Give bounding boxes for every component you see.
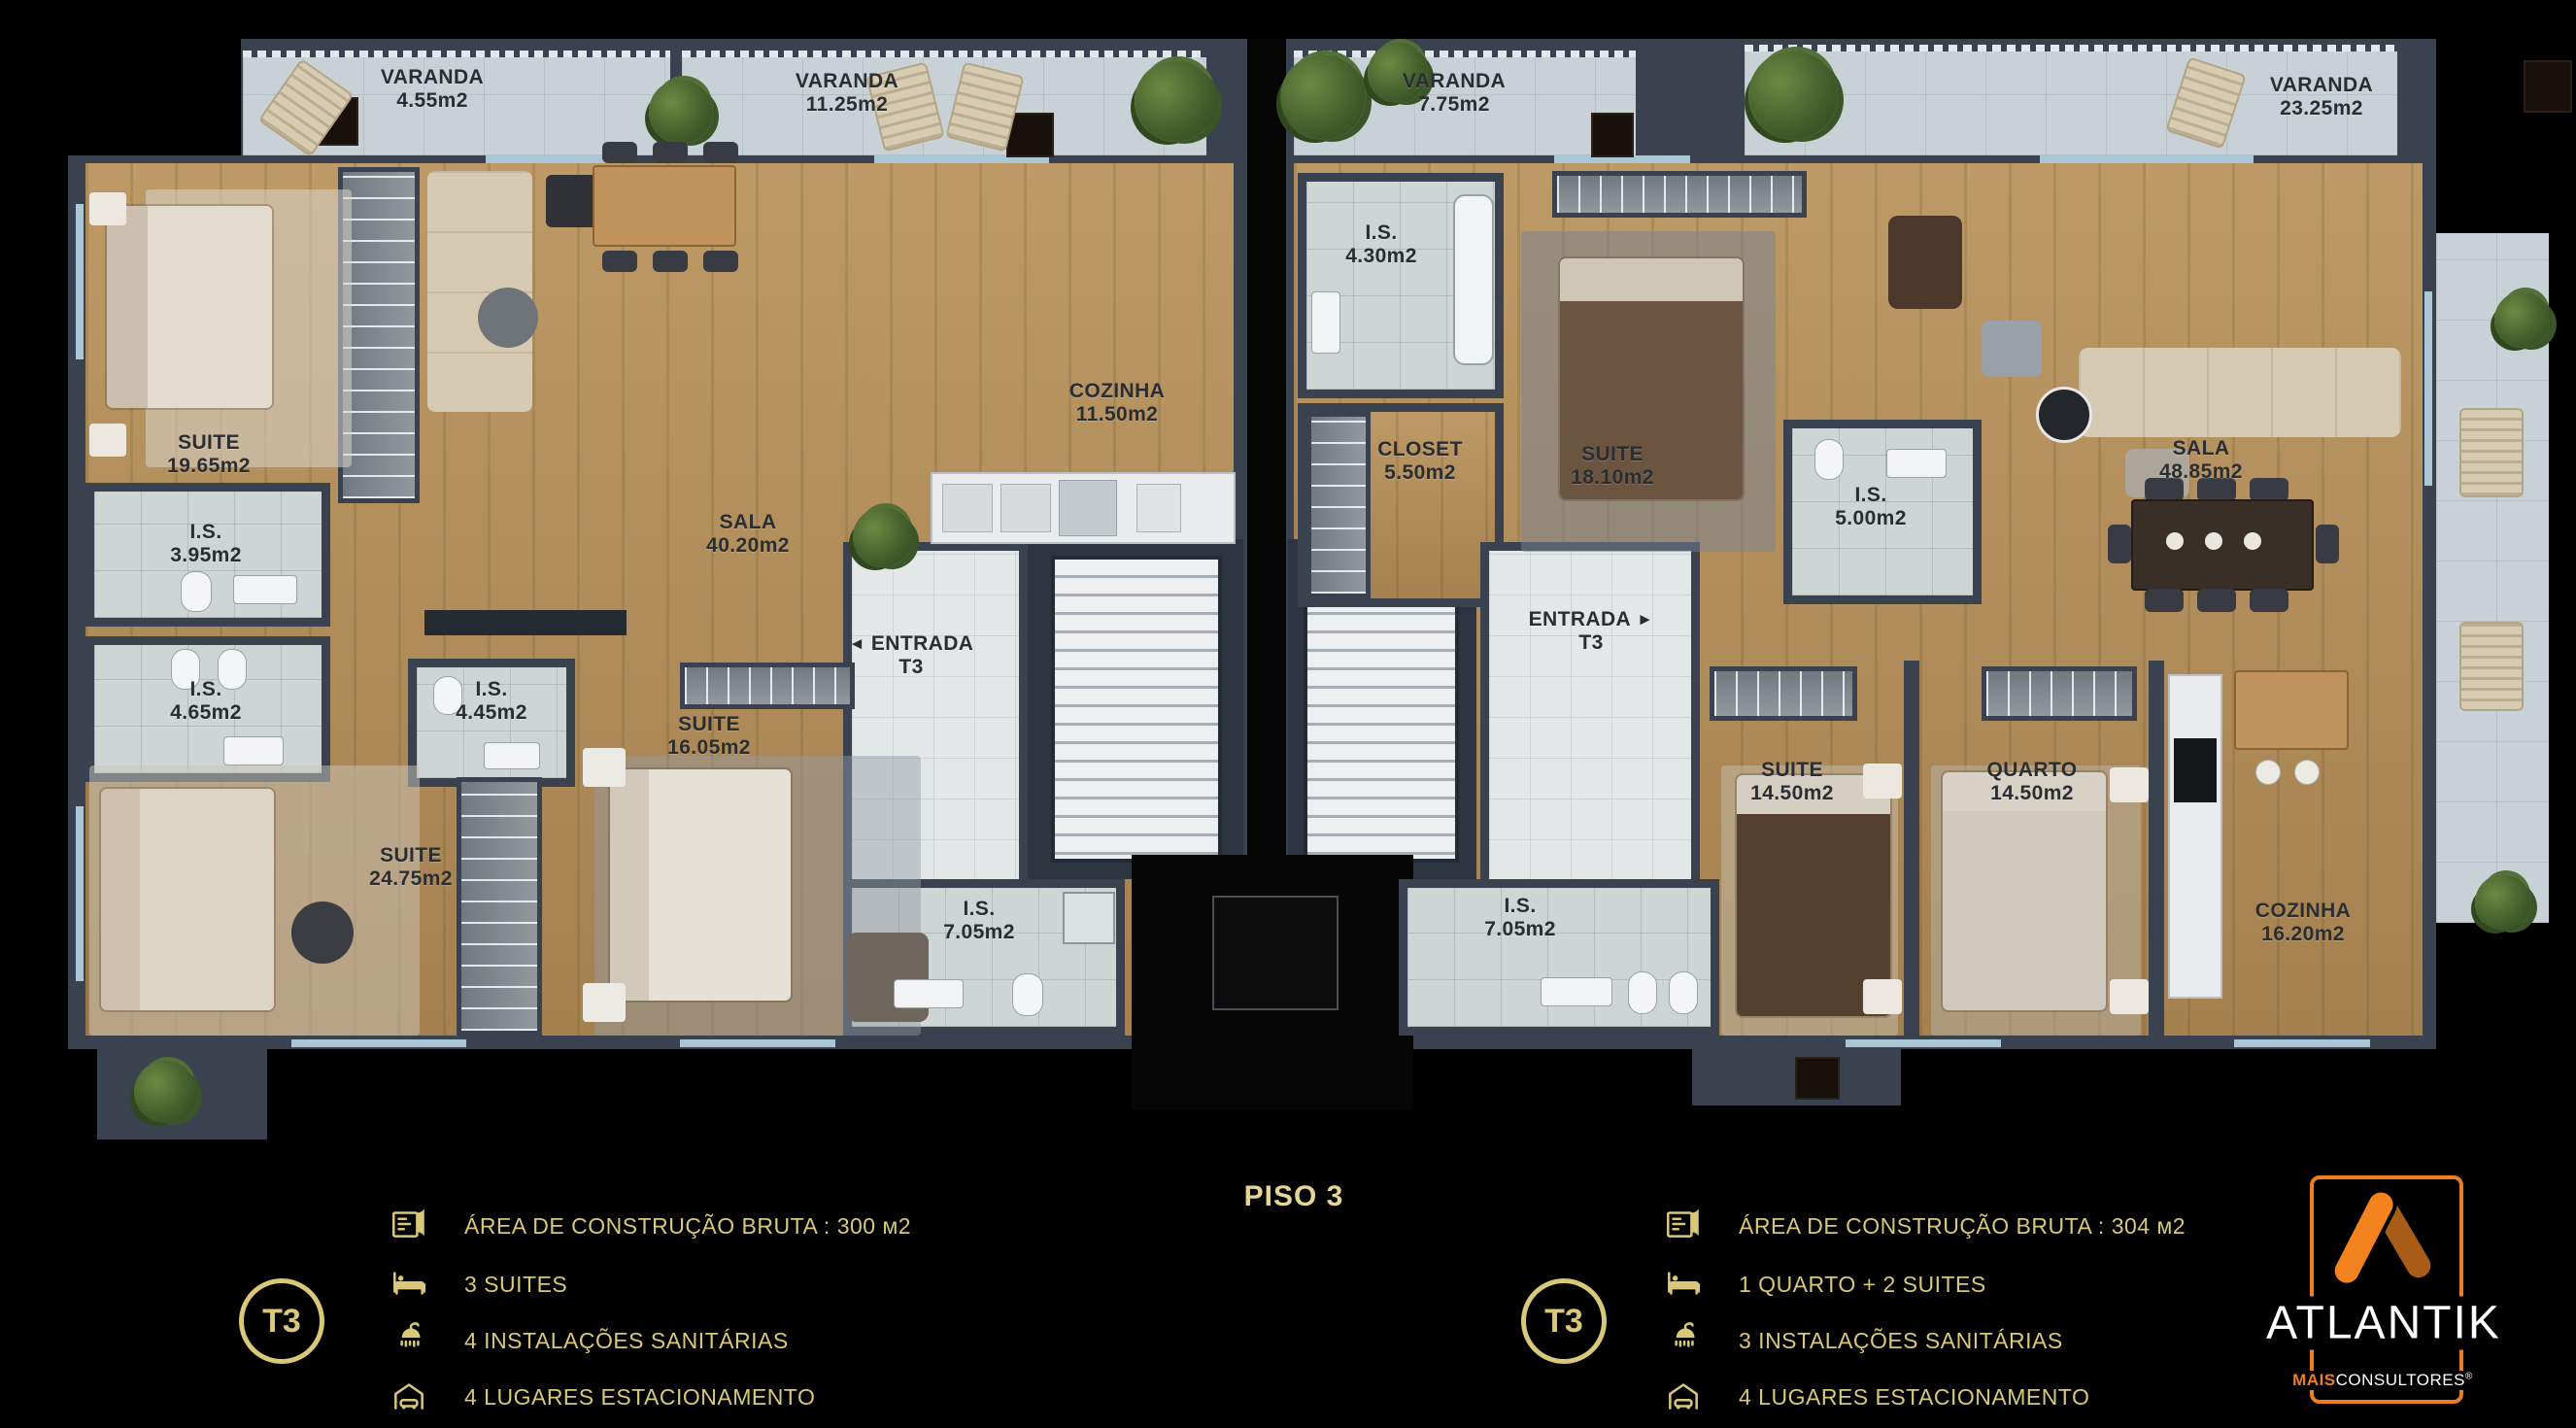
wardrobe bbox=[1710, 666, 1857, 721]
balcony-2 bbox=[682, 54, 1206, 155]
logo-chevron-icon bbox=[2325, 1187, 2440, 1290]
window bbox=[2234, 1039, 2370, 1047]
room-label-suite-16-05: SUITE16.05m2 bbox=[667, 713, 751, 760]
room-label-is-3-95: I.S.3.95m2 bbox=[170, 521, 242, 567]
dining-chair bbox=[602, 142, 637, 163]
top-left-void bbox=[64, 35, 241, 155]
elevator-car bbox=[1212, 896, 1339, 1010]
plant-icon bbox=[1748, 51, 1838, 140]
garage-icon bbox=[389, 1375, 429, 1420]
bed bbox=[610, 769, 791, 1001]
wardrobe bbox=[457, 777, 542, 1036]
balcony-railing bbox=[1294, 51, 1636, 57]
plant-icon bbox=[1135, 60, 1216, 142]
nightstand bbox=[583, 748, 626, 787]
room-label-is-7-05-right: I.S.7.05m2 bbox=[1484, 895, 1556, 941]
legend-row-parking: 4 LUGARES ESTACIONAMENTO bbox=[389, 1376, 815, 1418]
room-label-varanda-3: VARANDA7.75m2 bbox=[1403, 70, 1506, 117]
vent-box bbox=[1591, 113, 1634, 157]
logo-tagline: MAISCONSULTORES® bbox=[2288, 1371, 2478, 1390]
toilet bbox=[1814, 439, 1844, 480]
legend-row-parking: 4 LUGARES ESTACIONAMENTO bbox=[1663, 1376, 2089, 1418]
window bbox=[680, 1039, 835, 1047]
plant-icon bbox=[2475, 874, 2531, 931]
plate bbox=[2244, 532, 2261, 550]
dining-table bbox=[593, 165, 736, 247]
legend-row-bathrooms: 3 INSTALAÇÕES SANITÁRIAS bbox=[1663, 1319, 2063, 1362]
vanity-sink bbox=[233, 575, 297, 604]
nightstand bbox=[583, 983, 626, 1022]
room-label-closet-5-50: CLOSET5.50m2 bbox=[1377, 438, 1463, 485]
legend-row-suites: 3 SUITES bbox=[389, 1263, 567, 1306]
balcony-railing bbox=[1745, 45, 2397, 51]
room-label-sala-40-20: SALA40.20m2 bbox=[706, 511, 790, 558]
room-is-7-05-right bbox=[1399, 879, 1719, 1036]
room-label-is-4-30: I.S.4.30m2 bbox=[1345, 221, 1417, 268]
vanity-sink bbox=[894, 979, 964, 1008]
bed bbox=[1943, 772, 2106, 1010]
nightstand bbox=[89, 424, 126, 457]
vanity-sink bbox=[1311, 291, 1340, 354]
lounge-chair bbox=[2459, 408, 2524, 497]
vanity-sink bbox=[223, 736, 284, 765]
stool bbox=[2255, 760, 2281, 785]
toilet bbox=[1628, 971, 1657, 1014]
garage-icon bbox=[1663, 1375, 1704, 1420]
dining-chair bbox=[2108, 525, 2131, 563]
nightstand bbox=[2110, 767, 2149, 802]
pouf bbox=[1982, 321, 2042, 377]
kitchen-counter bbox=[2168, 674, 2222, 999]
dining-chair bbox=[2145, 589, 2184, 612]
typology-badge: T3 bbox=[1521, 1278, 1607, 1364]
floor-plan: VARANDA4.55m2 VARANDA11.25m2 VARANDA7.75… bbox=[0, 0, 2576, 1166]
bathtub bbox=[1453, 194, 1494, 365]
kitchen-appliance bbox=[942, 484, 993, 532]
nightstand bbox=[1863, 764, 1902, 799]
dining-chair bbox=[2316, 525, 2339, 563]
partition-wall bbox=[1904, 661, 1919, 1036]
plant-icon bbox=[1280, 54, 1366, 140]
entrance-arrow-icon: ◄ bbox=[849, 632, 865, 656]
window bbox=[2424, 291, 2432, 486]
room-label-varanda-2: VARANDA11.25m2 bbox=[796, 70, 898, 117]
coffee-table bbox=[478, 288, 538, 348]
bidet bbox=[1669, 971, 1698, 1014]
room-label-entrada-left: ◄ENTRADA T3 bbox=[849, 632, 974, 679]
wardrobe bbox=[1982, 666, 2137, 721]
legend-row-bathrooms: 4 INSTALAÇÕES SANITÁRIAS bbox=[389, 1319, 789, 1362]
entrance-arrow-icon: ► bbox=[1637, 608, 1653, 631]
plate bbox=[2166, 532, 2184, 550]
dining-chair bbox=[2250, 478, 2288, 501]
vanity-sink bbox=[1541, 977, 1612, 1006]
dining-chair bbox=[602, 251, 637, 272]
balcony-railing bbox=[243, 51, 670, 57]
room-label-varanda-4: VARANDA23.25m2 bbox=[2270, 74, 2373, 120]
floorplan-icon bbox=[1663, 1204, 1704, 1249]
armchair bbox=[847, 933, 929, 1022]
dining-chair bbox=[653, 251, 688, 272]
kitchen-appliance bbox=[1136, 484, 1181, 532]
room-label-is-4-65: I.S.4.65m2 bbox=[170, 678, 242, 725]
room-label-entrada-right: ENTRADA► T3 bbox=[1529, 608, 1654, 655]
lounge-chair bbox=[2459, 622, 2524, 711]
floorplan-icon bbox=[389, 1204, 429, 1249]
wardrobe bbox=[1306, 412, 1371, 598]
tv-sideboard bbox=[424, 610, 627, 635]
logo-brand-text: ATLANTIK bbox=[2258, 1297, 2509, 1350]
room-label-sala-48-85: SALA48.85m2 bbox=[2159, 437, 2243, 484]
bed-icon bbox=[389, 1262, 429, 1308]
window bbox=[1846, 1039, 2001, 1047]
room-label-varanda-1: VARANDA4.55m2 bbox=[381, 66, 484, 113]
dining-table bbox=[2131, 499, 2314, 591]
room-entrada-right bbox=[1480, 542, 1700, 931]
dining-chair bbox=[653, 142, 688, 163]
window bbox=[76, 204, 84, 359]
room-label-cozinha-11-50: COZINHA11.50m2 bbox=[1069, 380, 1165, 426]
wardrobe bbox=[1552, 171, 1807, 218]
shower bbox=[1063, 892, 1115, 944]
room-label-quarto-14-50: QUARTO14.50m2 bbox=[1986, 759, 2077, 805]
plant-icon bbox=[853, 507, 913, 567]
kitchen-island bbox=[2234, 670, 2349, 750]
nightstand bbox=[1863, 979, 1902, 1014]
room-label-is-5-00: I.S.5.00m2 bbox=[1835, 484, 1907, 530]
kitchen-appliance bbox=[1000, 484, 1051, 532]
room-label-suite-19-65: SUITE19.65m2 bbox=[167, 431, 251, 478]
plant-icon bbox=[649, 80, 713, 144]
room-label-is-4-45: I.S.4.45m2 bbox=[456, 678, 527, 725]
plant-icon bbox=[134, 1061, 196, 1123]
vent-box bbox=[2524, 60, 2572, 113]
staircase-left bbox=[1051, 556, 1222, 863]
dining-chair bbox=[2197, 589, 2236, 612]
armchair bbox=[1888, 216, 1962, 309]
shower-icon bbox=[389, 1318, 429, 1364]
dining-chair bbox=[2250, 589, 2288, 612]
room-label-suite-18-10: SUITE18.10m2 bbox=[1571, 443, 1654, 490]
nightstand bbox=[2110, 979, 2149, 1014]
balcony-railing bbox=[682, 51, 1206, 57]
partition-wall bbox=[2149, 661, 2164, 1036]
dining-chair bbox=[703, 251, 738, 272]
toilet bbox=[181, 571, 212, 612]
plate bbox=[2205, 532, 2222, 550]
room-label-is-7-05-left: I.S.7.05m2 bbox=[943, 898, 1015, 944]
floor-plan-page: { "floor_title": "PISO 3", "colors": { "… bbox=[0, 0, 2576, 1428]
bed-icon bbox=[1663, 1262, 1704, 1308]
legend-row-area: ÁREA DE CONSTRUÇÃO BRUTA : 304 м2 bbox=[1663, 1205, 2186, 1247]
vanity-sink bbox=[484, 742, 540, 769]
typology-badge: T3 bbox=[239, 1278, 324, 1364]
legend-row-area: ÁREA DE CONSTRUÇÃO BRUTA : 300 м2 bbox=[389, 1205, 911, 1247]
vanity-sink bbox=[1886, 449, 1947, 478]
bed bbox=[101, 789, 274, 1010]
dining-chair bbox=[703, 142, 738, 163]
stool bbox=[2294, 760, 2320, 785]
legend-row-suites: 1 QUARTO + 2 SUITES bbox=[1663, 1263, 1986, 1306]
wardrobe bbox=[680, 663, 855, 709]
nightstand bbox=[89, 192, 126, 225]
window bbox=[291, 1039, 466, 1047]
shower-icon bbox=[1663, 1318, 1704, 1364]
sofa bbox=[2079, 348, 2401, 437]
floor-title: PISO 3 bbox=[1244, 1180, 1344, 1213]
kitchen-sink bbox=[1059, 480, 1117, 536]
stove bbox=[2174, 738, 2217, 802]
coffee-table bbox=[2036, 387, 2092, 443]
window bbox=[76, 806, 84, 981]
room-label-suite-24-75: SUITE24.75m2 bbox=[369, 844, 453, 891]
armchair bbox=[291, 901, 354, 964]
plant-icon bbox=[2494, 291, 2551, 348]
window bbox=[2040, 155, 2254, 163]
vent-box bbox=[1795, 1057, 1840, 1100]
room-label-suite-14-50: SUITE14.50m2 bbox=[1750, 759, 1834, 805]
bed bbox=[107, 206, 272, 408]
room-label-cozinha-16-20: COZINHA16.20m2 bbox=[2255, 900, 2351, 946]
toilet bbox=[1012, 973, 1043, 1016]
